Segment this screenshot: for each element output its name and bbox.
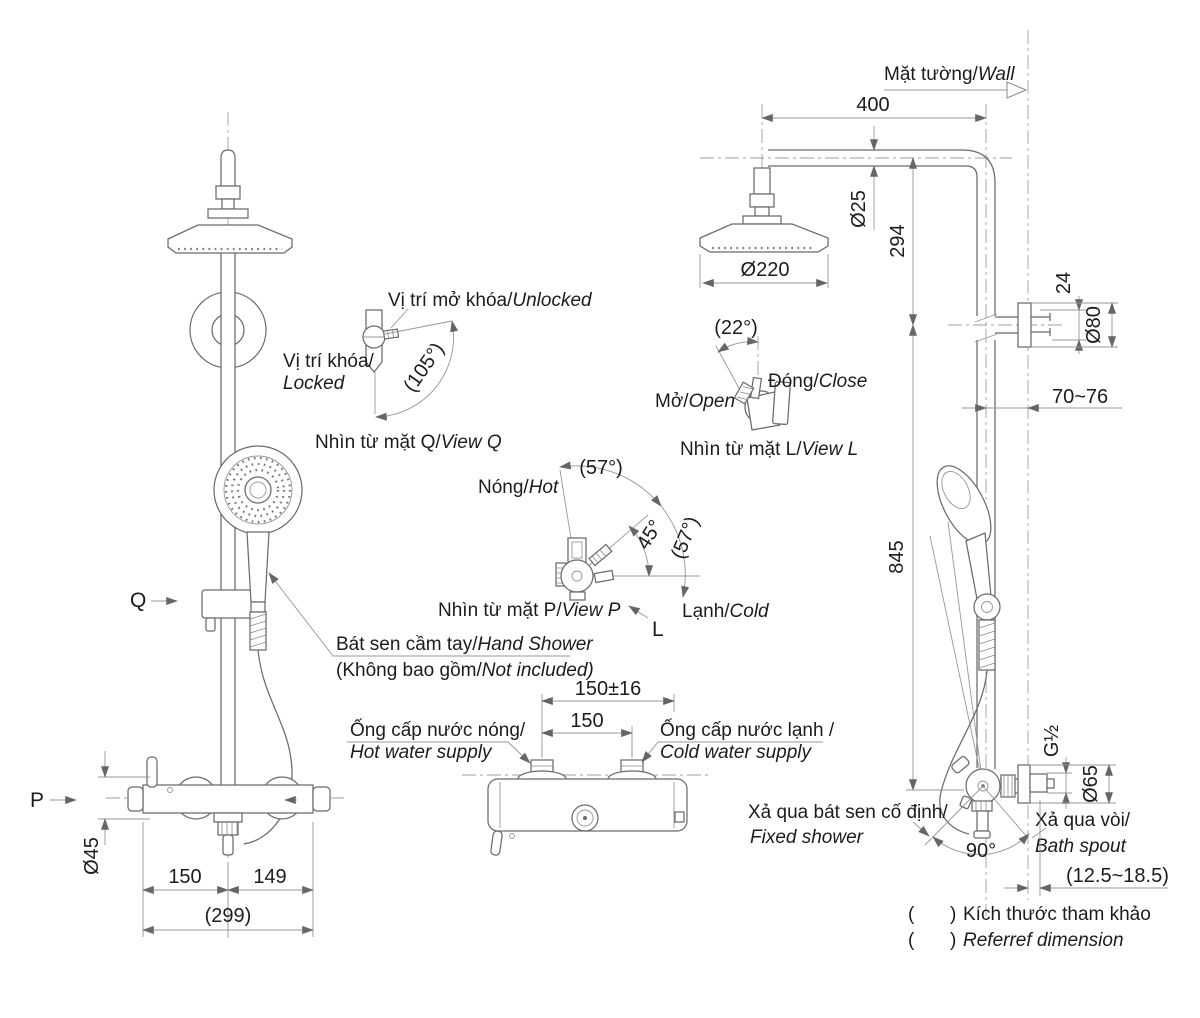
view-p-detail: (57°) (57°) 45° Nóng/Hot Lạnh/Cold Nhìn … (438, 457, 770, 641)
unlocked-leader (391, 309, 408, 328)
hot-supply-label-en: Hot water supply (350, 742, 493, 763)
bracket-flange (1018, 303, 1031, 347)
reference-notes: ()Kích thước tham khảo ()Referref dimens… (908, 904, 1151, 951)
stop-lever (147, 757, 157, 787)
dim-swivel-angle: 90° (966, 840, 996, 862)
fixed-shower-label-en: Fixed shower (750, 827, 864, 848)
hand-shower-head (214, 446, 302, 534)
wall-label: Mặt tường/Wall (884, 64, 1015, 85)
slider-ring-side (974, 594, 1000, 620)
dim-inlet-span: 150 (570, 710, 603, 732)
head-stub-pipe (221, 150, 235, 186)
outlet-center (583, 816, 587, 820)
bracket-pins (1031, 313, 1050, 336)
hot-label: Nóng/Hot (478, 477, 559, 498)
stop-button (675, 812, 684, 822)
hose-nut (251, 602, 265, 612)
head-stub-side (754, 168, 770, 194)
dim-arm-reach: 400 (856, 94, 889, 116)
fixed-shower-leader (913, 822, 929, 836)
note-line-2: ()Referref dimension (908, 930, 1124, 951)
ball-joint-box (216, 186, 240, 199)
locked-label-vi: Vị trí khóa/ (283, 351, 375, 372)
open-close-arc (718, 342, 758, 352)
pipe-break-marks (975, 314, 997, 342)
outlet-ribbed (218, 822, 238, 835)
bath-spout-label: Xả qua vòi/ (1035, 810, 1131, 831)
dim-angle-right: (57°) (667, 513, 704, 562)
dim-thread: G½ (1041, 725, 1063, 758)
dim-lock-angle: (105°) (399, 339, 448, 396)
ball-joint-inner (222, 199, 234, 209)
ball-joint-side-inner (755, 207, 769, 216)
ball-joint-side (750, 194, 774, 207)
valve-top-view (556, 538, 614, 600)
view-l-direction-arrow (629, 606, 648, 618)
dim-valve-diameter: Ø45 (81, 837, 103, 875)
dim-inlet-tolerance: 150±16 (575, 678, 642, 700)
close-label: Đóng/Close (768, 371, 867, 392)
hot-supply-label: Ống cấp nước nóng/ (350, 719, 526, 741)
valve-tab-side (959, 796, 971, 810)
valve-left-cap (128, 787, 143, 811)
valve-wall-flange (1018, 765, 1030, 803)
head-collar (208, 209, 248, 218)
open-direction-line (716, 346, 740, 390)
valve-body (143, 785, 313, 813)
valve-wall-nipple (1030, 774, 1047, 792)
valve-outlet-stem-side (977, 811, 988, 831)
wall-direction-triangle (1007, 82, 1026, 98)
hand-shower-label: Bát sen cầm tay/Hand Shower (336, 634, 593, 655)
cold-supply-label-en: Cold water supply (660, 742, 813, 763)
dim-arm-diameter: Ø25 (848, 190, 870, 228)
dim-head-diameter: Ø220 (741, 259, 790, 281)
dim-bracket-diameter: Ø80 (1083, 306, 1105, 344)
open-label: Mở/Open (655, 391, 735, 412)
shower-system-dimension-drawing: Ø45 P Q Bát sen cầm tay/Hand Shower (Khô… (0, 0, 1200, 1018)
side-view-dimensions: 400 Ø25 294 845 Ø220 24 Ø80 70~76 G½ Ø65 (700, 94, 1169, 896)
view-p-marker: P (30, 789, 44, 812)
slider-tab (206, 618, 215, 631)
valve-nipple-end (1047, 779, 1054, 788)
technical-drawing-page: Ø45 P Q Bát sen cầm tay/Hand Shower (Khô… (0, 0, 1200, 1018)
outlet-base (214, 813, 242, 822)
front-view-shower-column (106, 112, 344, 938)
dim-open-angle: (22°) (714, 317, 758, 339)
bath-spout-label-en: Bath spout (1035, 836, 1127, 857)
dim-angle-mid: 45° (633, 516, 668, 553)
dim-wall-gap: (12.5~18.5) (1066, 865, 1169, 887)
dim-bracket-pin: 24 (1053, 272, 1075, 294)
unlocked-label: Vị trí mở khóa/Unlocked (388, 290, 593, 311)
dim-valve-flange-diameter: Ø65 (1080, 765, 1102, 803)
hand-shower-handle-side (966, 533, 991, 599)
fixed-shower-label: Xả qua bát sen cố định/ (748, 802, 948, 823)
hand-shower-handle (247, 532, 269, 602)
front-view-dimensions: Ø45 P Q Bát sen cầm tay/Hand Shower (Khô… (30, 573, 594, 937)
valve-outlet-end-side (974, 831, 990, 838)
view-q-detail: (105°) Vị trí mở khóa/Unlocked Vị trí kh… (283, 290, 593, 453)
dim-angle-top: (57°) (579, 457, 623, 479)
valve-outlet-nut-side (972, 801, 992, 811)
cold-supply-label: Ống cấp nước lạnh / (660, 719, 835, 741)
head-collar-side (743, 216, 781, 224)
view-q-title: Nhìn từ mặt Q/View Q (315, 432, 502, 453)
hand-shower-head-side (926, 458, 1002, 553)
rain-shower-head (168, 225, 292, 253)
valve-right-cap (313, 787, 330, 811)
note-line-1: ()Kích thước tham khảo (908, 904, 1151, 925)
dim-wall-offset: 70~76 (1052, 386, 1108, 408)
cold-label: Lạnh/Cold (682, 601, 770, 622)
dim-left-span: 150 (168, 866, 201, 888)
dim-total-span: (299) (205, 905, 252, 927)
dim-bar-height: 845 (886, 540, 908, 573)
view-l-marker: L (652, 618, 664, 641)
locked-label-en: Locked (283, 373, 346, 394)
lever-bottom (490, 831, 502, 856)
not-included-label: (Không bao gồm/Not included) (336, 660, 594, 681)
dim-right-span: 149 (253, 866, 286, 888)
view-p-title: Nhìn từ mặt P/View P (438, 600, 621, 621)
view-l-detail: (22°) Mở/Open Đóng/Close Nhìn từ mặt L/V… (655, 317, 867, 460)
view-l-title: Nhìn từ mặt L/View L (680, 439, 858, 460)
dim-head-drop: 294 (887, 224, 909, 257)
outlet-stem (223, 835, 233, 855)
view-q-marker: Q (130, 589, 146, 612)
